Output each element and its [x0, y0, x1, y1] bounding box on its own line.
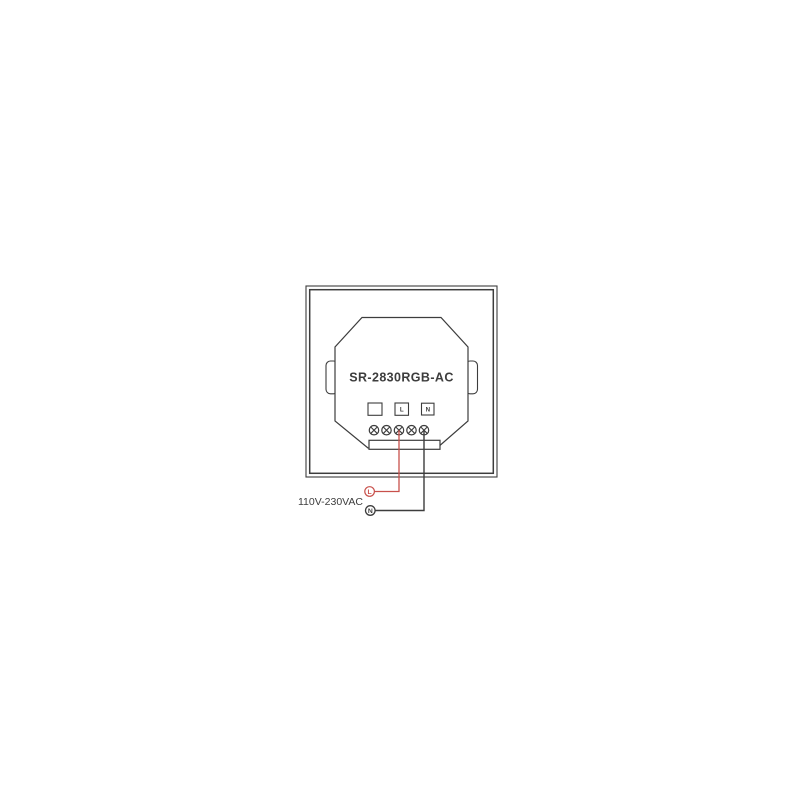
- device-model-label: SR-2830RGB-AC: [349, 371, 454, 385]
- terminal-box-live-label: L: [400, 407, 404, 414]
- power-rating-label: 110V-230VAC: [298, 496, 363, 508]
- terminal-box-neutral-label: N: [426, 407, 431, 414]
- terminal-strip: [369, 440, 440, 449]
- screw-terminal-icon: [407, 426, 416, 435]
- neutral-terminal-marker: N: [366, 506, 376, 516]
- screw-terminal-icon: [382, 426, 391, 435]
- screw-terminal-icon: [369, 426, 378, 435]
- live-terminal-letter: L: [368, 489, 372, 496]
- live-terminal-marker: L: [365, 487, 375, 497]
- wiring-diagram: SR-2830RGB-AC L N N: [0, 0, 800, 800]
- diagram-canvas: SR-2830RGB-AC L N N: [0, 0, 800, 800]
- terminal-box-blank: [368, 403, 382, 415]
- neutral-terminal-letter: N: [368, 508, 373, 515]
- terminal-block: L N: [368, 403, 434, 415]
